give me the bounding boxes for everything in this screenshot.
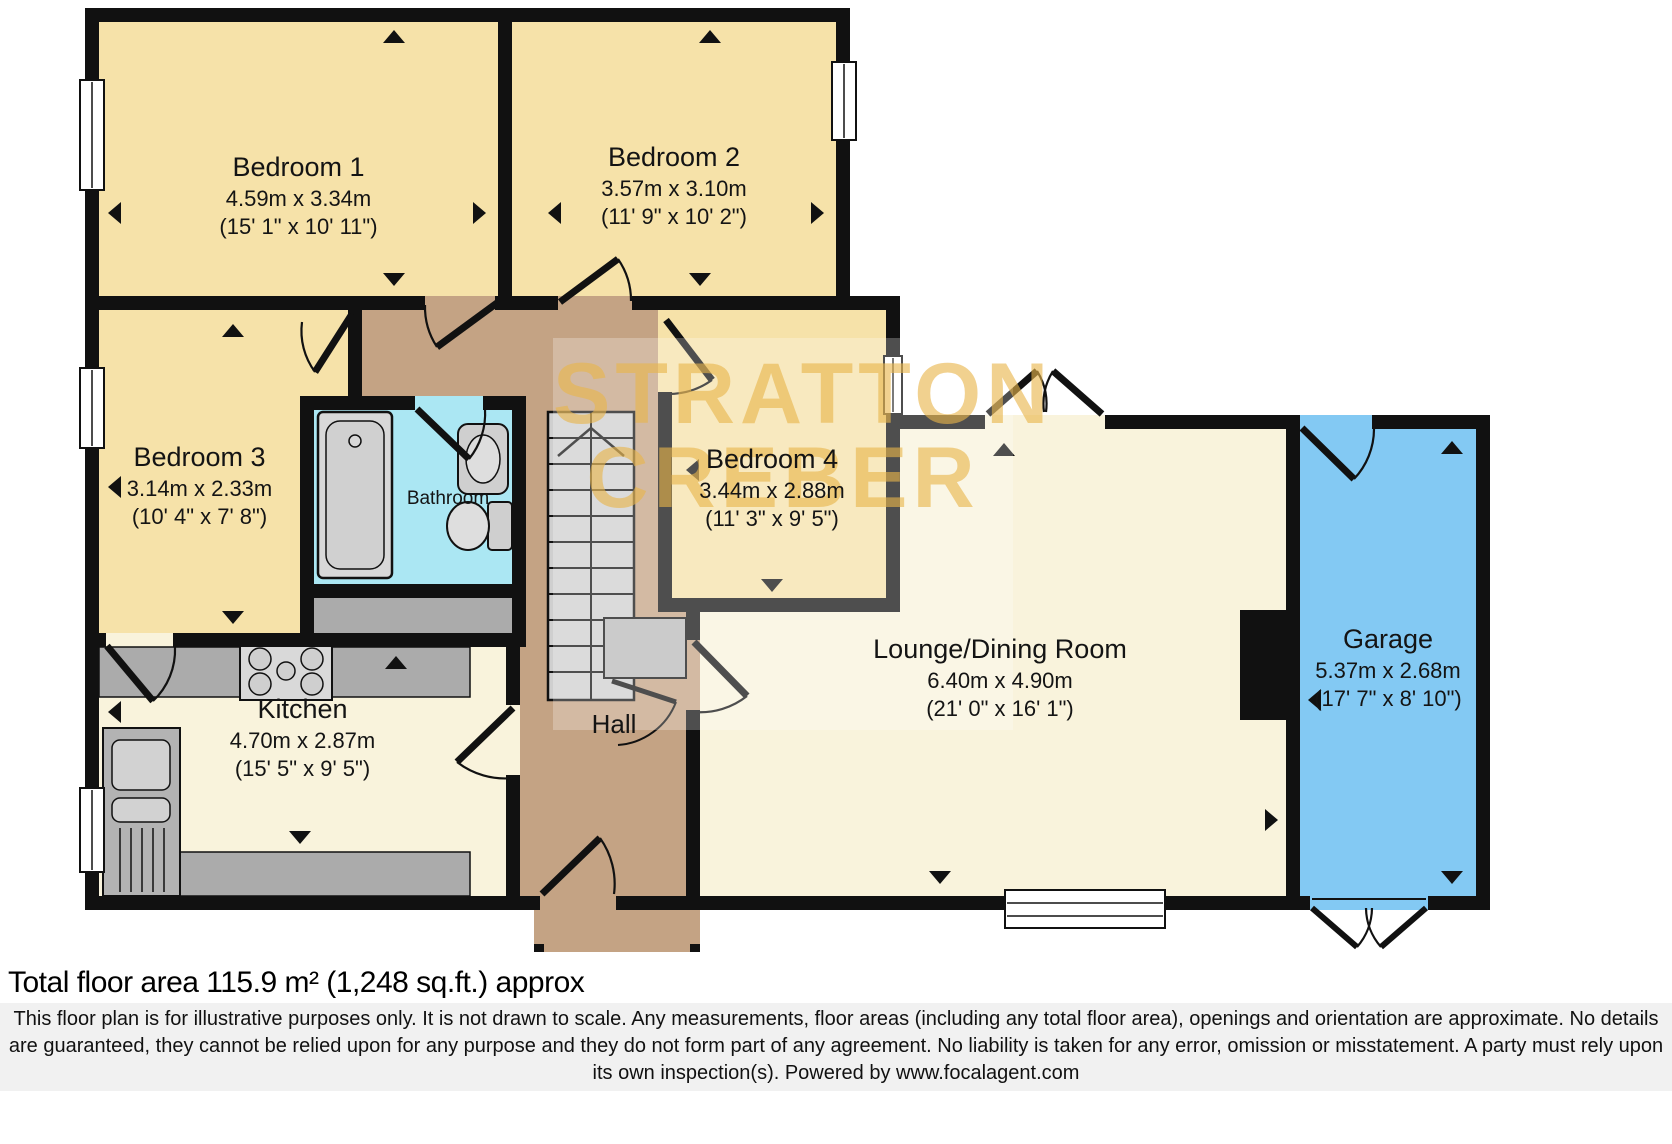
garage-label: Garage 5.37m x 2.68m (17' 7" x 8' 10")	[1296, 622, 1480, 713]
room-dim-metric: 4.59m x 3.34m	[99, 185, 498, 213]
bedroom3-window	[80, 368, 104, 448]
bedroom3-label: Bedroom 3 3.14m x 2.33m (10' 4" x 7' 8")	[99, 440, 300, 531]
room-dim-imperial: (11' 9" x 10' 2")	[512, 203, 836, 231]
room-dim-metric: 6.40m x 4.90m	[740, 667, 1260, 695]
bedroom4-window	[884, 356, 902, 414]
room-name: Bedroom 2	[512, 140, 836, 175]
hall-label: Hall	[534, 708, 694, 741]
room-dim-imperial: (15' 5" x 9' 5")	[99, 755, 506, 783]
floor-plan: STRATTON CREBER Bedroom 1 4.59m x 3.34m …	[0, 0, 1672, 960]
room-name: Bedroom 3	[99, 440, 300, 475]
room-dim-imperial: (17' 7" x 8' 10")	[1296, 685, 1480, 713]
disclaimer-text: This floor plan is for illustrative purp…	[0, 1003, 1672, 1091]
room-name: Hall	[534, 708, 694, 741]
porch	[534, 910, 700, 952]
room-dim-metric: 4.70m x 2.87m	[99, 727, 506, 755]
bathroom-label: Bathroom	[378, 487, 518, 511]
room-name: Kitchen	[99, 692, 506, 727]
room-dim-metric: 5.37m x 2.68m	[1296, 657, 1480, 685]
bedroom2-label: Bedroom 2 3.57m x 3.10m (11' 9" x 10' 2"…	[512, 140, 836, 231]
french-doors	[988, 371, 1102, 414]
room-dim-imperial: (11' 3" x 9' 5")	[658, 505, 886, 533]
room-dim-metric: 3.14m x 2.33m	[99, 475, 300, 503]
room-dim-imperial: (10' 4" x 7' 8")	[99, 503, 300, 531]
room-dim-imperial: (15' 1" x 10' 11")	[99, 213, 498, 241]
bedroom4-label: Bedroom 4 3.44m x 2.88m (11' 3" x 9' 5")	[658, 442, 886, 533]
kitchen-label: Kitchen 4.70m x 2.87m (15' 5" x 9' 5")	[99, 692, 506, 783]
room-name: Bathroom	[378, 487, 518, 511]
lounge-label: Lounge/Dining Room 6.40m x 4.90m (21' 0"…	[740, 632, 1260, 723]
bedroom2-window	[832, 62, 856, 140]
total-floor-area: Total floor area 115.9 m² (1,248 sq.ft.)…	[8, 966, 584, 1000]
kitchen-counter-bottom	[150, 852, 470, 896]
room-dim-metric: 3.44m x 2.88m	[658, 477, 886, 505]
landing-floor	[362, 310, 534, 396]
room-name: Garage	[1296, 622, 1480, 657]
room-dim-imperial: (21' 0" x 16' 1")	[740, 695, 1260, 723]
room-dim-metric: 3.57m x 3.10m	[512, 175, 836, 203]
lounge-window	[1005, 890, 1165, 928]
room-name: Lounge/Dining Room	[740, 632, 1260, 667]
hall-cupboard	[604, 618, 686, 678]
room-name: Bedroom 1	[99, 150, 498, 185]
bedroom1-label: Bedroom 1 4.59m x 3.34m (15' 1" x 10' 11…	[99, 150, 498, 241]
room-name: Bedroom 4	[658, 442, 886, 477]
kitchen-window	[80, 788, 104, 872]
